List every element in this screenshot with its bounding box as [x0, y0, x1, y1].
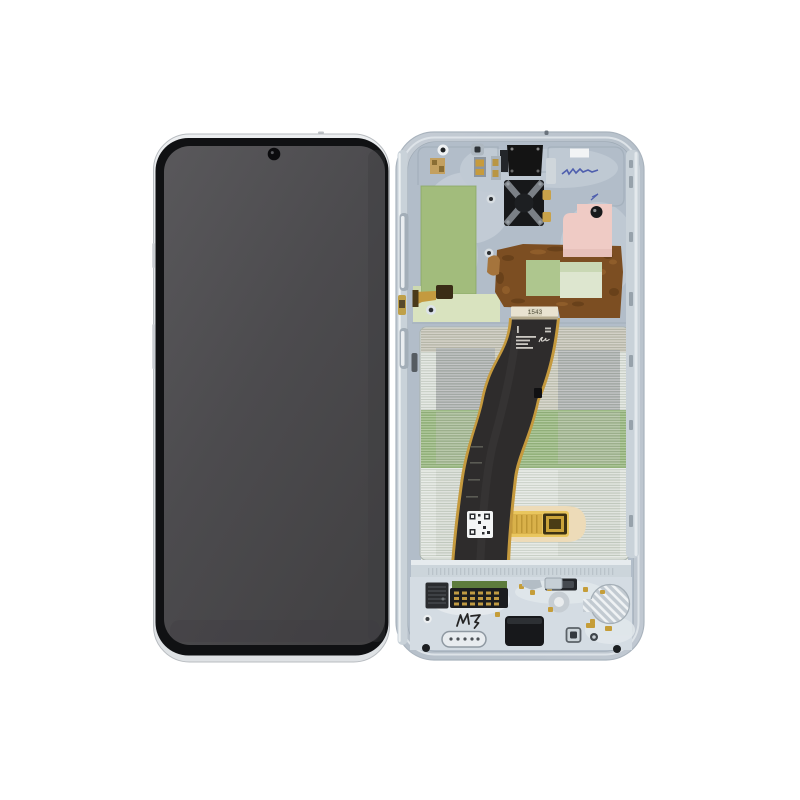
- svg-text:1543: 1543: [528, 309, 543, 316]
